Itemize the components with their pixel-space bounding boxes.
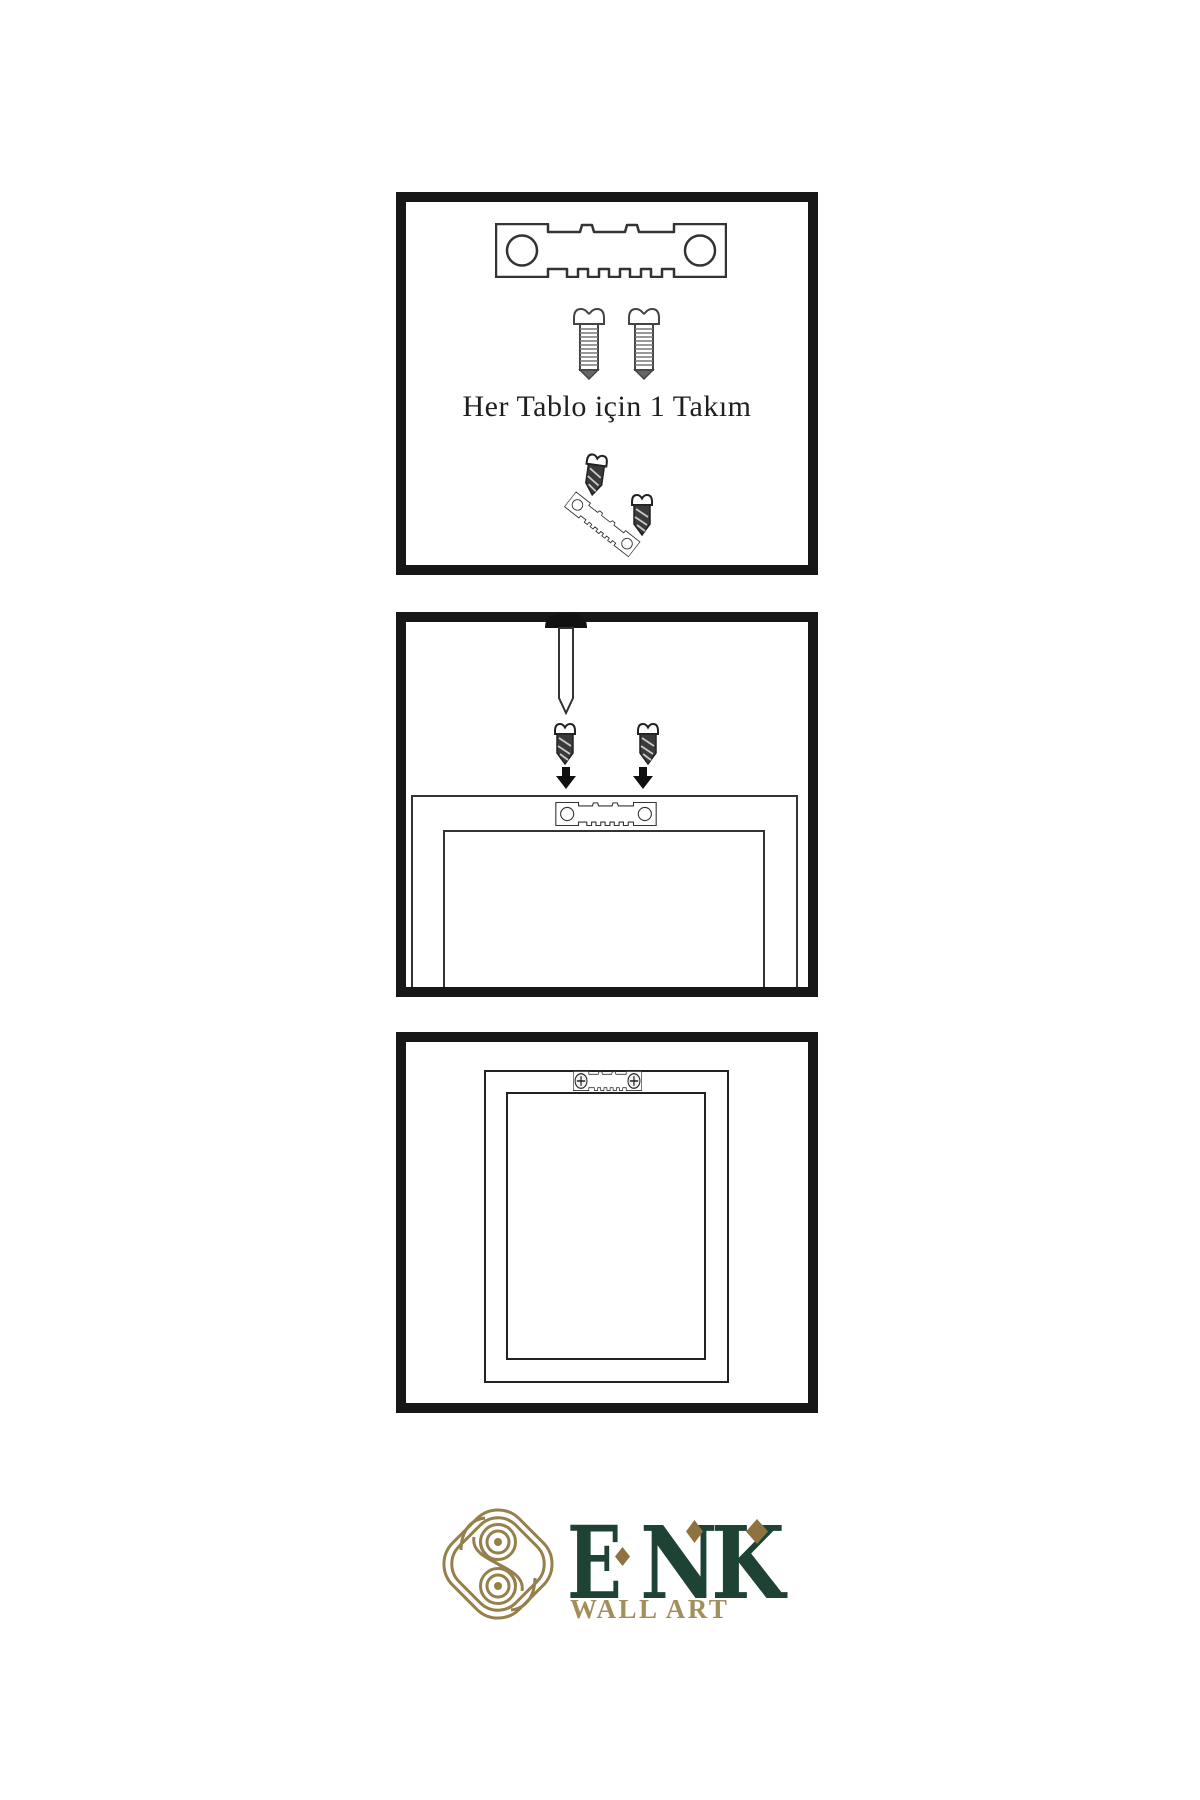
screw-icon	[626, 306, 662, 380]
step2-content	[406, 622, 808, 987]
step1-panel: Her Tablo için 1 Takım	[396, 192, 818, 575]
screw-dark-icon	[636, 722, 660, 766]
sawtooth-hanger-screwed-icon	[573, 1071, 642, 1091]
brand-tagline: WALL ART	[570, 1594, 729, 1625]
sawtooth-hanger-icon	[554, 802, 658, 826]
screw-dark-icon	[580, 452, 610, 499]
step3-panel	[396, 1032, 818, 1413]
arrow-down-icon	[633, 767, 653, 789]
arrow-down-icon	[556, 767, 576, 789]
sawtooth-hanger-icon	[495, 223, 727, 278]
page-root: { "page": { "background": "#ffffff" }, "…	[0, 0, 1200, 1800]
screw-icon	[571, 306, 607, 380]
artwork-area	[506, 1092, 706, 1360]
screw-dark-icon	[553, 722, 577, 766]
wall-nail-icon	[543, 612, 589, 716]
step2-panel	[396, 612, 818, 997]
step3-content	[406, 1042, 808, 1403]
frame-back-inner-edge	[443, 830, 765, 987]
step1-content: Her Tablo için 1 Takım	[406, 202, 808, 565]
screw-dark-icon	[630, 493, 654, 537]
brand-knot-icon	[433, 1502, 563, 1626]
instruction-caption: Her Tablo için 1 Takım	[406, 390, 808, 424]
